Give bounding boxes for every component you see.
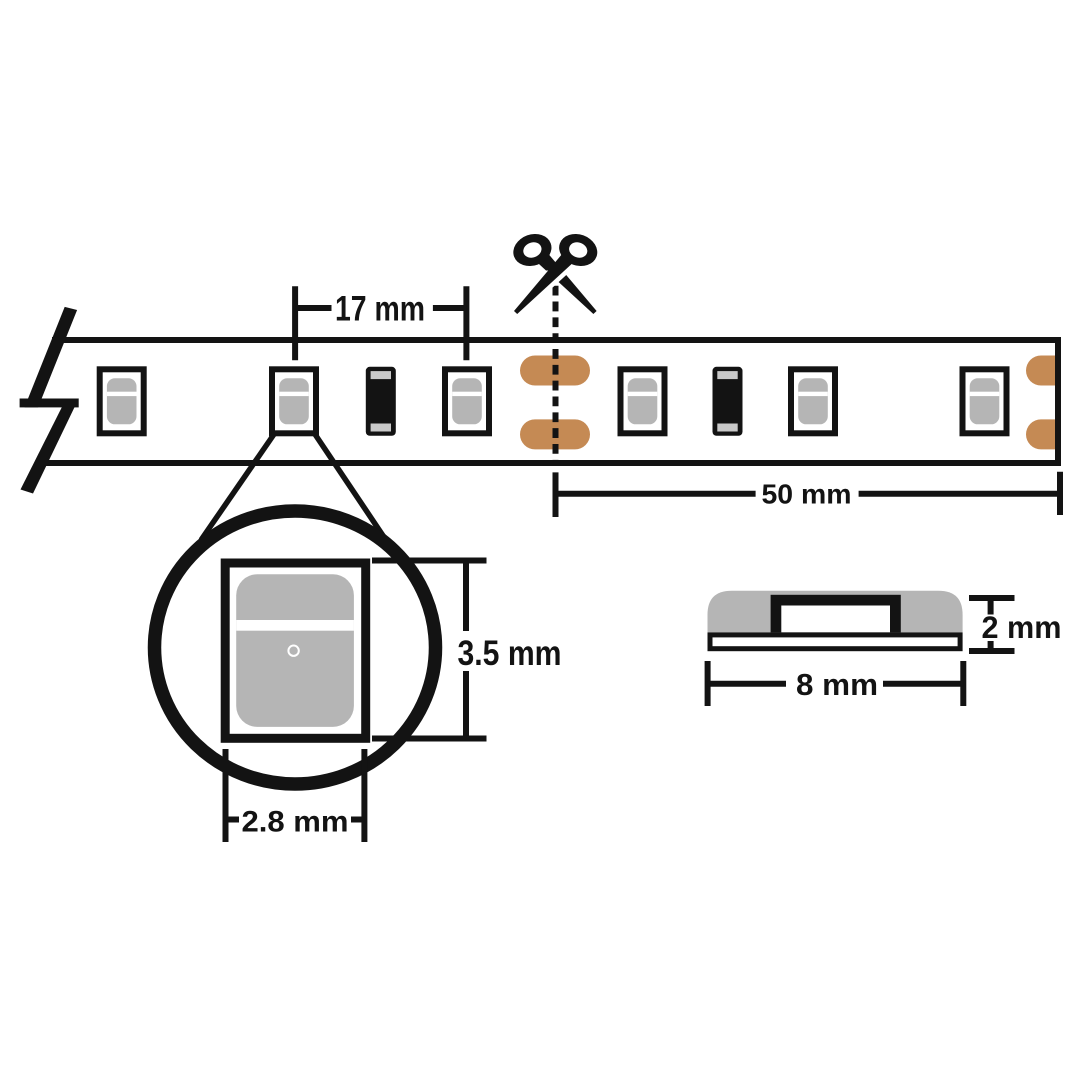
svg-text:3.5 mm: 3.5 mm [458, 633, 562, 673]
svg-text:17 mm: 17 mm [335, 289, 425, 329]
svg-text:50 mm: 50 mm [762, 479, 852, 510]
svg-text:8 mm: 8 mm [796, 667, 878, 702]
svg-text:2 mm: 2 mm [982, 609, 1062, 645]
svg-text:2.8 mm: 2.8 mm [242, 805, 349, 838]
